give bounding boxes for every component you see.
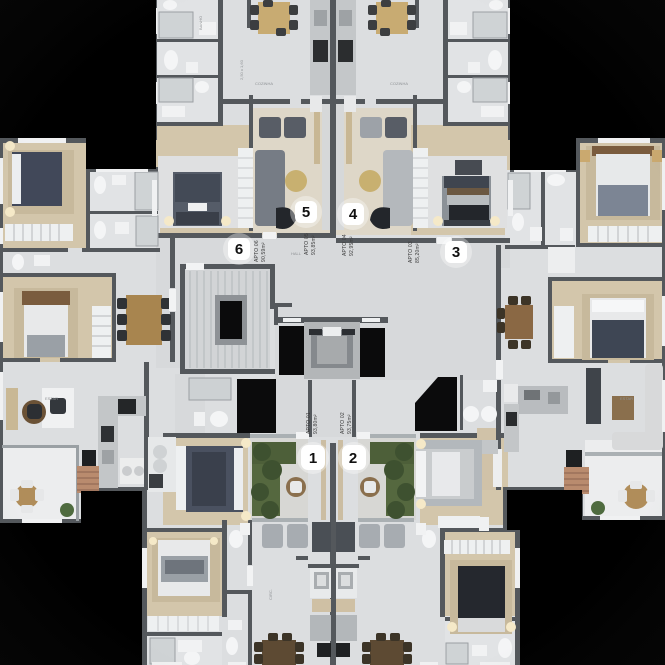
svg-text:93,75m²: 93,75m² — [347, 414, 353, 434]
svg-text:6: 6 — [235, 241, 243, 258]
svg-text:93,85m²: 93,85m² — [311, 235, 317, 255]
svg-text:2: 2 — [349, 450, 357, 467]
svg-text:APTO 05: APTO 05 — [304, 233, 310, 255]
svg-text:APTO 03: APTO 03 — [408, 241, 414, 263]
svg-text:APTO 02: APTO 02 — [340, 412, 346, 434]
svg-text:APTO 01: APTO 01 — [306, 412, 312, 434]
svg-text:92,95m²: 92,95m² — [349, 236, 355, 256]
svg-text:85,20m²: 85,20m² — [415, 243, 421, 263]
svg-text:4: 4 — [349, 206, 358, 223]
svg-text:93,80m²: 93,80m² — [313, 414, 319, 434]
svg-text:APTO 04: APTO 04 — [342, 234, 348, 256]
svg-text:5: 5 — [302, 204, 310, 221]
svg-text:1: 1 — [309, 450, 317, 467]
svg-text:APTO 06: APTO 06 — [254, 240, 260, 262]
svg-text:90,59m²: 90,59m² — [261, 242, 267, 262]
svg-text:3: 3 — [452, 244, 460, 261]
